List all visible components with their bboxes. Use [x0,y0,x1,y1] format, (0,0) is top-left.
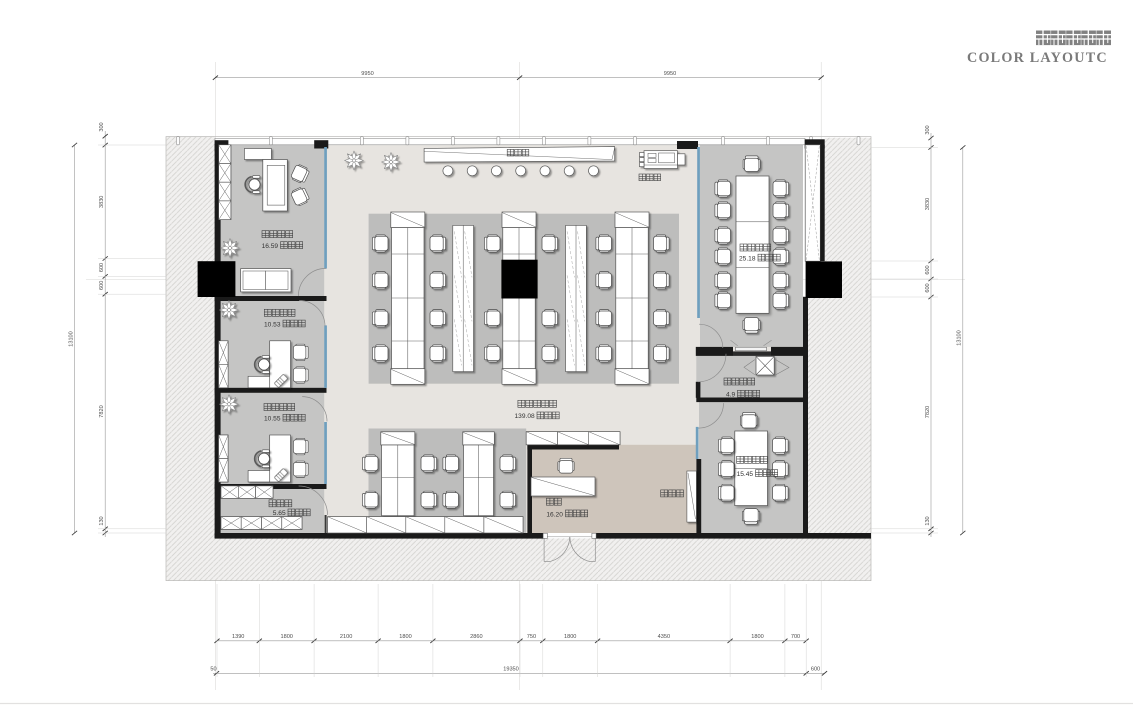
svg-text:139.08: 139.08 [515,413,536,420]
svg-text:3830: 3830 [99,196,105,208]
svg-text:19350: 19350 [503,667,519,673]
svg-text:4.9: 4.9 [726,392,735,399]
svg-text:5.65: 5.65 [273,510,286,517]
svg-text:1390: 1390 [232,634,244,640]
svg-text:700: 700 [791,634,800,640]
svg-text:600: 600 [99,263,105,272]
svg-text:4350: 4350 [658,634,670,640]
svg-text:130: 130 [925,516,931,525]
svg-text:300: 300 [99,122,105,131]
svg-text:600: 600 [811,667,820,673]
svg-text:16.20: 16.20 [546,511,563,518]
svg-text:9950: 9950 [361,71,373,77]
svg-text:50: 50 [210,667,216,673]
svg-text:130: 130 [99,516,105,525]
svg-text:7820: 7820 [925,406,931,418]
svg-text:600: 600 [99,281,105,290]
svg-text:16.59: 16.59 [262,243,279,250]
svg-text:9950: 9950 [664,71,676,77]
svg-text:7820: 7820 [99,405,105,417]
svg-text:1800: 1800 [564,634,576,640]
svg-text:2860: 2860 [470,634,482,640]
svg-text:10.53: 10.53 [264,321,281,328]
svg-text:10.55: 10.55 [264,416,281,423]
svg-text:13100: 13100 [69,331,75,347]
svg-text:1800: 1800 [751,634,763,640]
svg-text:1800: 1800 [280,634,292,640]
svg-text:15.45: 15.45 [737,471,754,478]
svg-text:600: 600 [925,283,931,292]
svg-text:300: 300 [925,125,931,134]
svg-text:3830: 3830 [925,198,931,210]
svg-text:25.18: 25.18 [739,255,756,262]
svg-text:1800: 1800 [399,634,411,640]
svg-text:750: 750 [527,634,536,640]
svg-text:600: 600 [925,265,931,274]
svg-text:2100: 2100 [340,634,352,640]
svg-text:COLOR LAYOUTC: COLOR LAYOUTC [967,50,1108,66]
svg-text:13100: 13100 [957,330,963,346]
